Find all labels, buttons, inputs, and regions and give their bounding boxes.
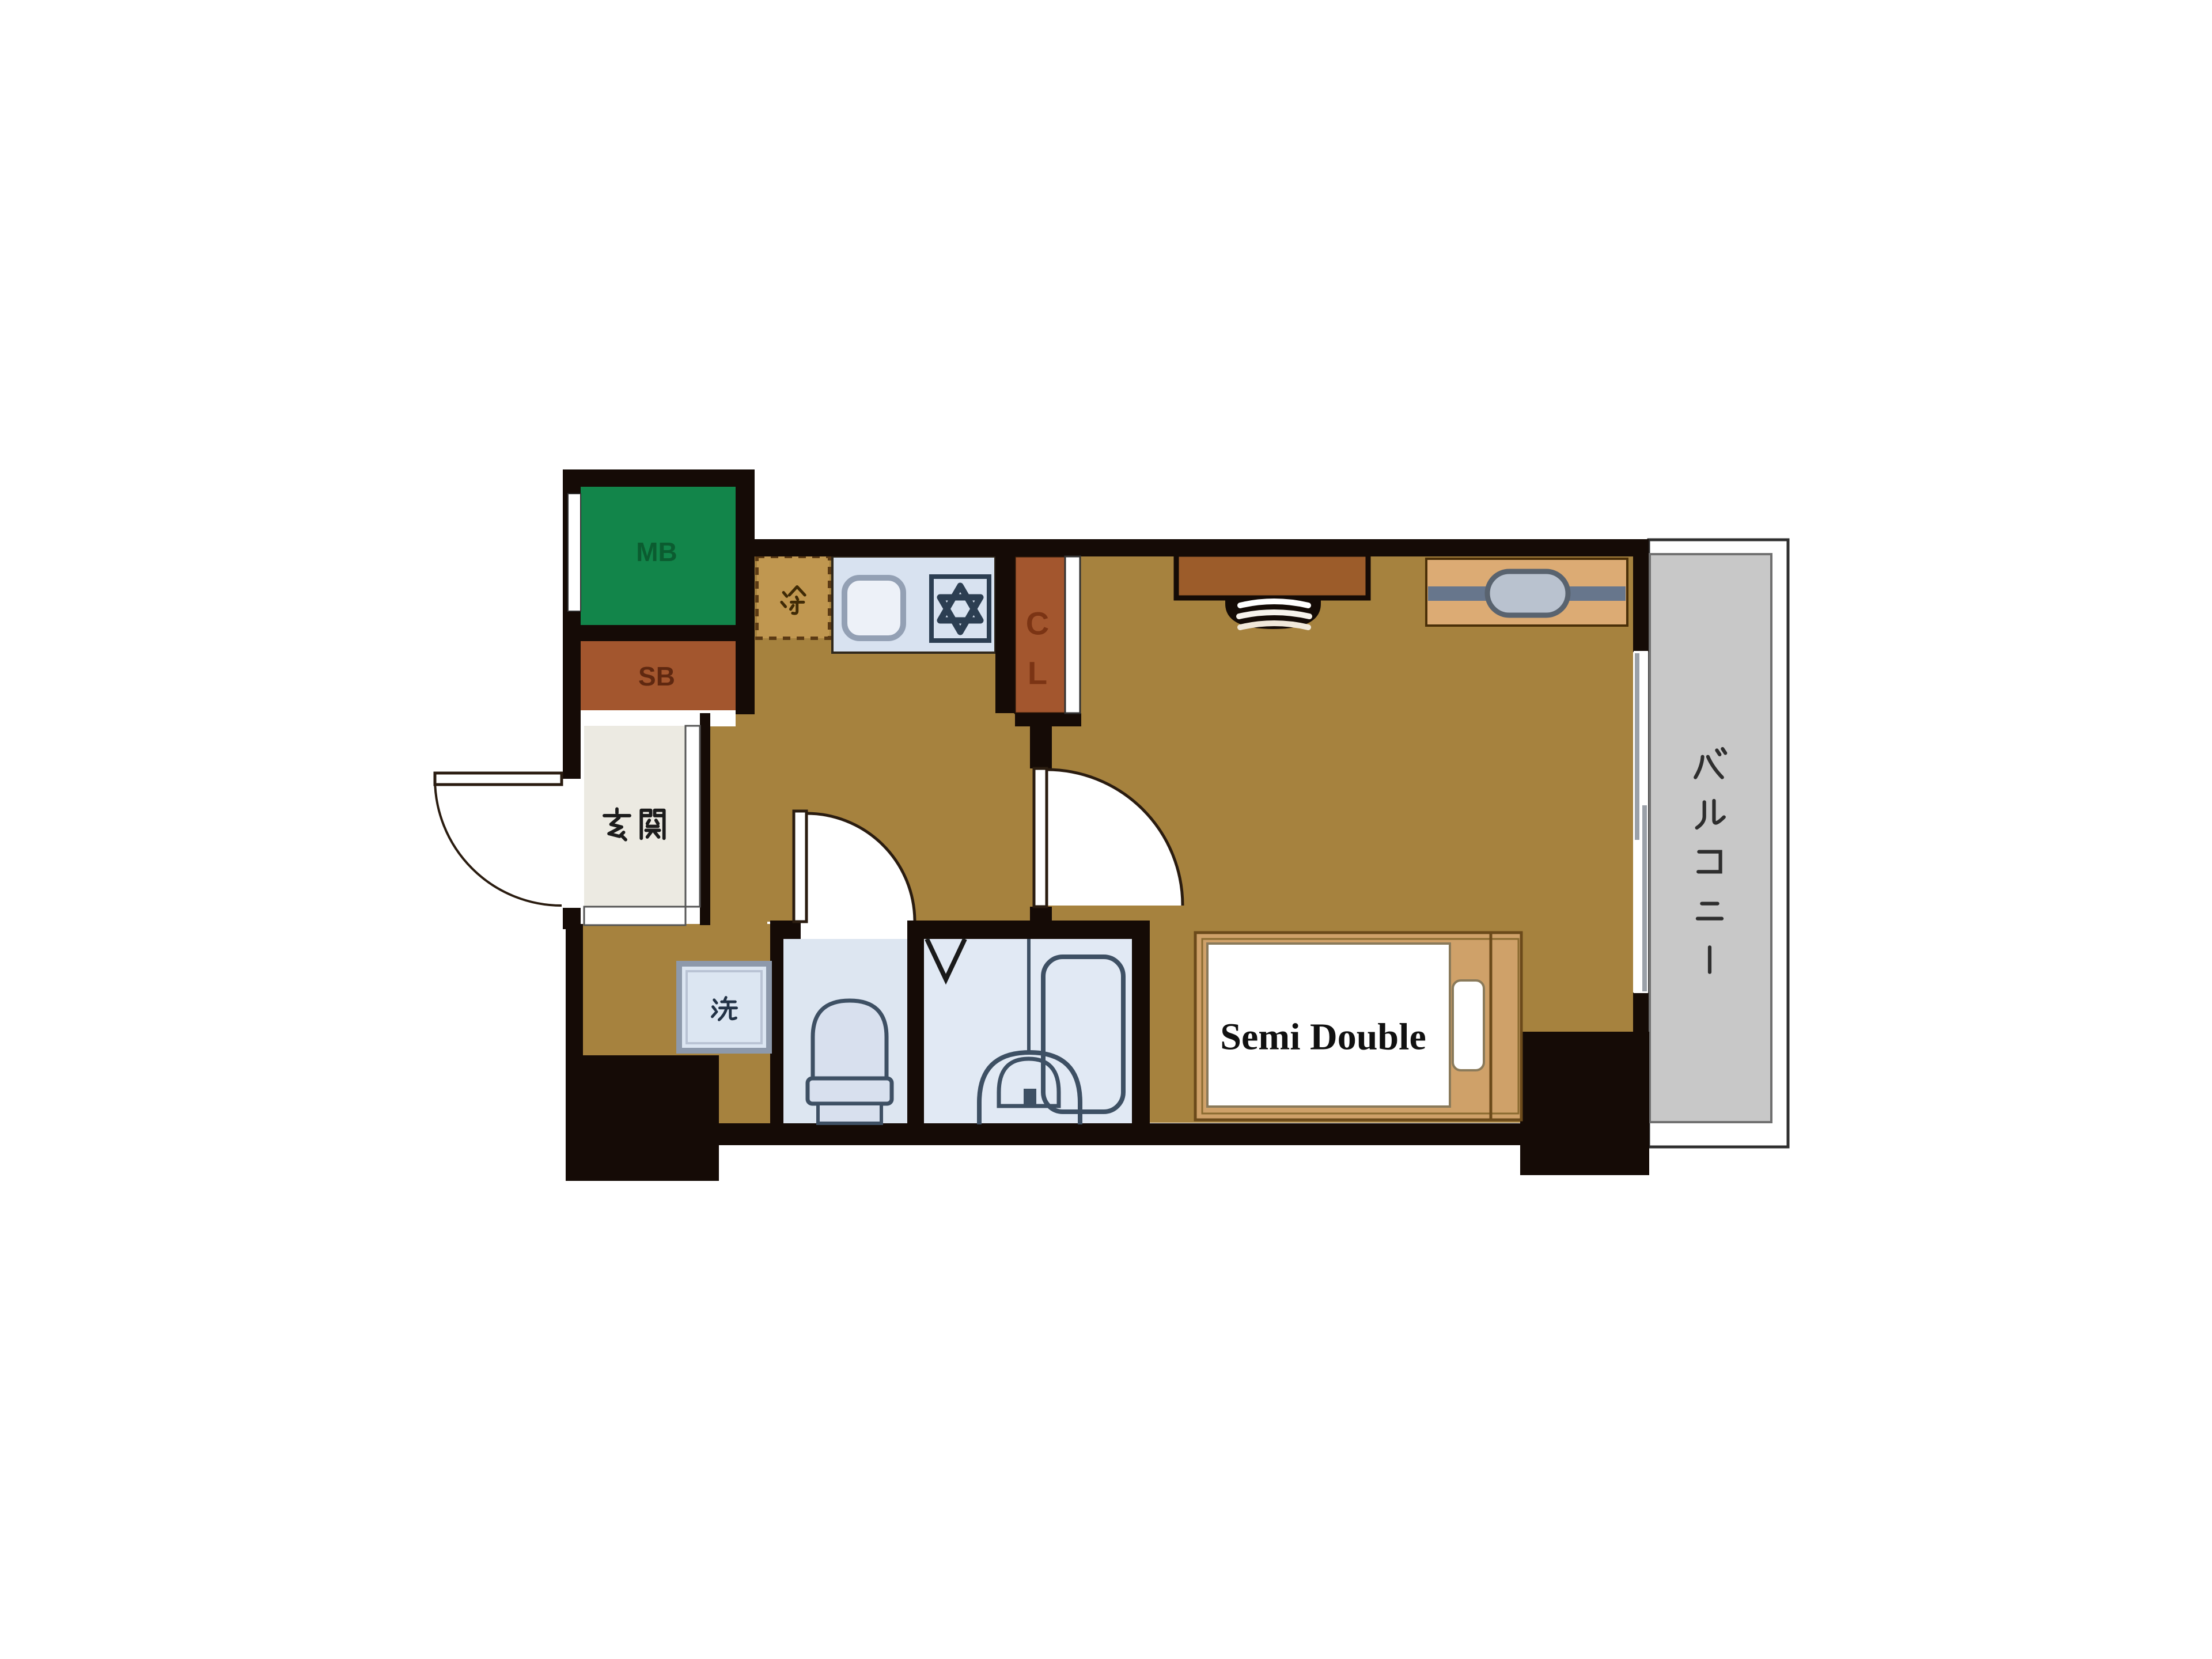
svg-text:Semi Double: Semi Double — [1220, 1016, 1426, 1058]
svg-text:MB: MB — [636, 537, 677, 567]
svg-text:SB: SB — [638, 661, 675, 691]
svg-text:C: C — [1026, 605, 1049, 642]
svg-text:L: L — [1028, 655, 1047, 691]
